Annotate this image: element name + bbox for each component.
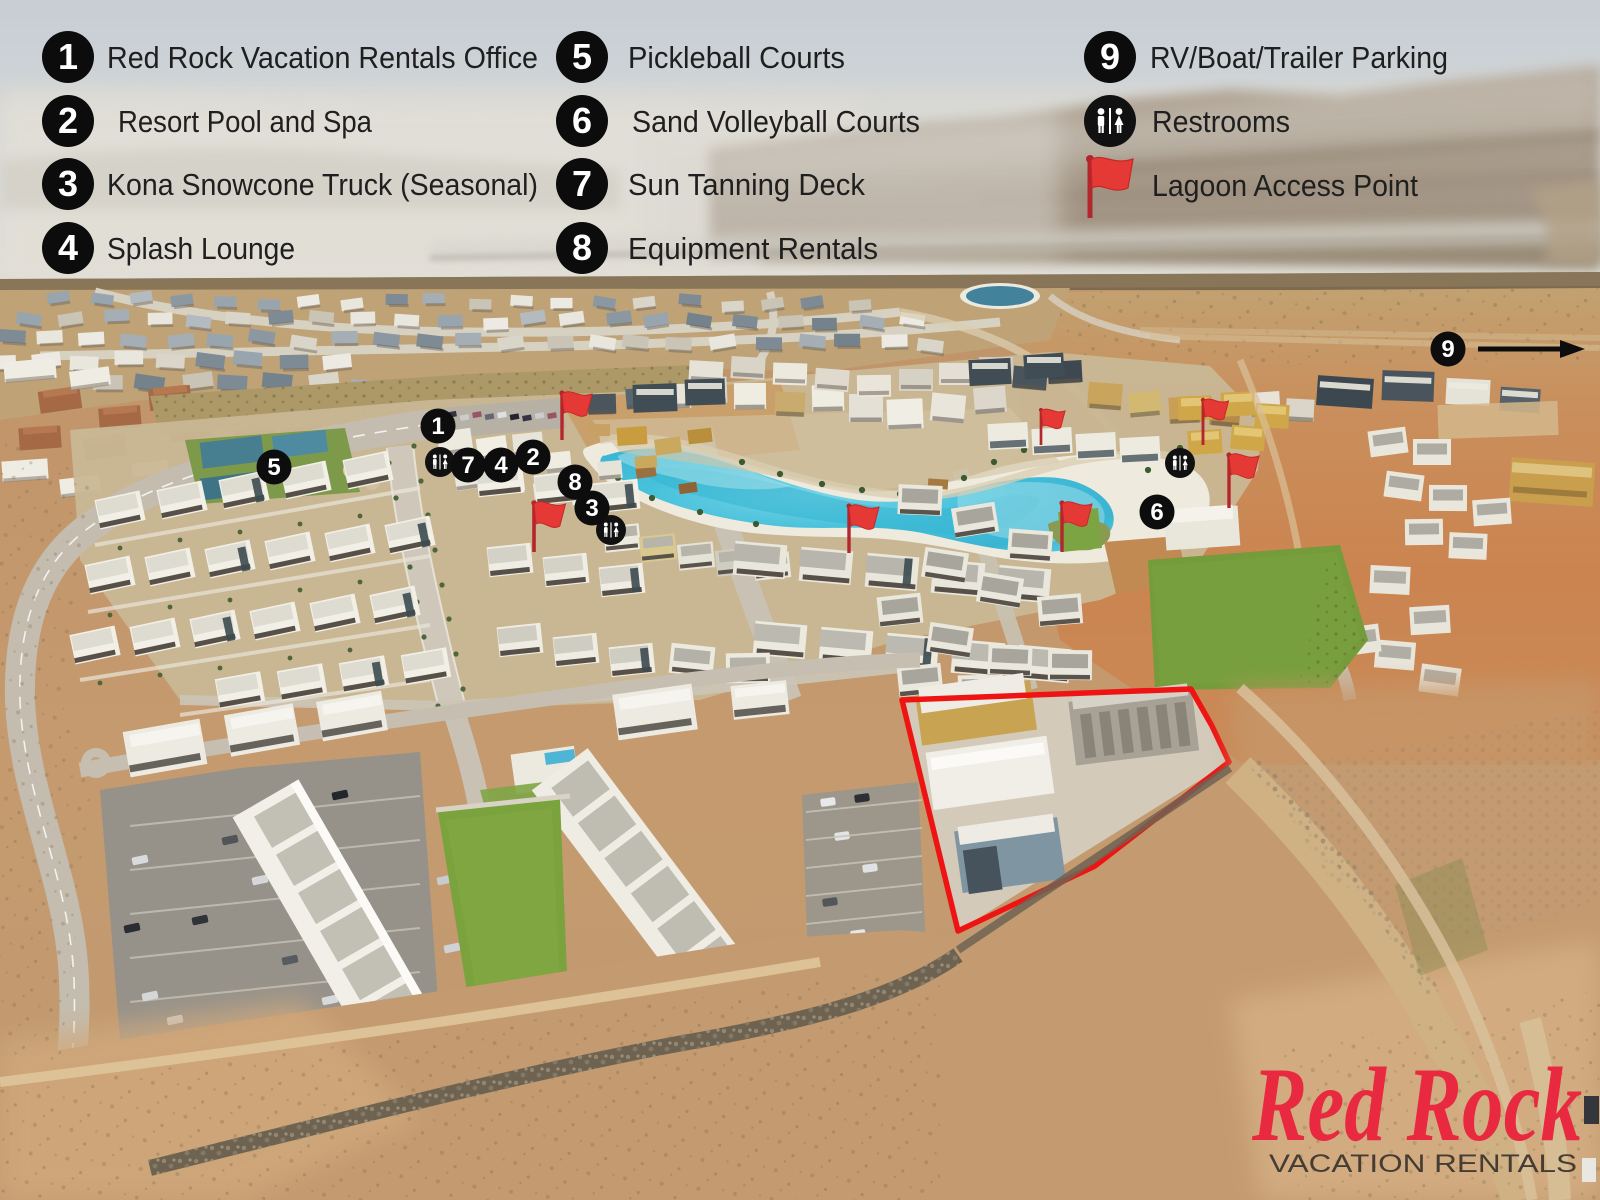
svg-text:4: 4 [494,452,508,479]
svg-text:2: 2 [58,100,78,141]
svg-text:Kona Snowcone Truck (Seasonal): Kona Snowcone Truck (Seasonal) [107,167,538,202]
svg-text:3: 3 [58,163,78,204]
svg-text:Sun Tanning Deck: Sun Tanning Deck [628,167,865,202]
svg-text:9: 9 [1441,336,1454,363]
svg-text:Red Rock Vacation Rentals Offi: Red Rock Vacation Rentals Office [107,40,538,75]
svg-text:2: 2 [526,444,539,471]
svg-text:Red Rock: Red Rock [1251,1046,1582,1163]
svg-text:1: 1 [431,413,444,440]
svg-text:4: 4 [58,227,78,268]
svg-text:Equipment Rentals: Equipment Rentals [628,231,878,266]
svg-text:Restrooms: Restrooms [1152,104,1290,139]
svg-text:5: 5 [572,36,592,77]
svg-text:5: 5 [267,454,280,481]
svg-text:Pickleball Courts: Pickleball Courts [628,40,845,75]
svg-text:8: 8 [568,469,581,496]
svg-text:7: 7 [572,163,592,204]
svg-text:8: 8 [572,227,592,268]
svg-text:9: 9 [1100,36,1120,77]
svg-text:7: 7 [461,452,474,479]
svg-text:VACATION RENTALS: VACATION RENTALS [1269,1150,1577,1178]
svg-text:6: 6 [572,100,592,141]
svg-text:6: 6 [1150,499,1163,526]
svg-text:Sand Volleyball Courts: Sand Volleyball Courts [632,104,920,139]
svg-text:Resort Pool and Spa: Resort Pool and Spa [118,104,373,139]
svg-text:3: 3 [585,495,598,522]
svg-text:RV/Boat/Trailer Parking: RV/Boat/Trailer Parking [1150,40,1448,75]
svg-text:1: 1 [58,36,78,77]
svg-text:Lagoon Access Point: Lagoon Access Point [1152,168,1418,203]
svg-text:Splash Lounge: Splash Lounge [107,231,295,266]
